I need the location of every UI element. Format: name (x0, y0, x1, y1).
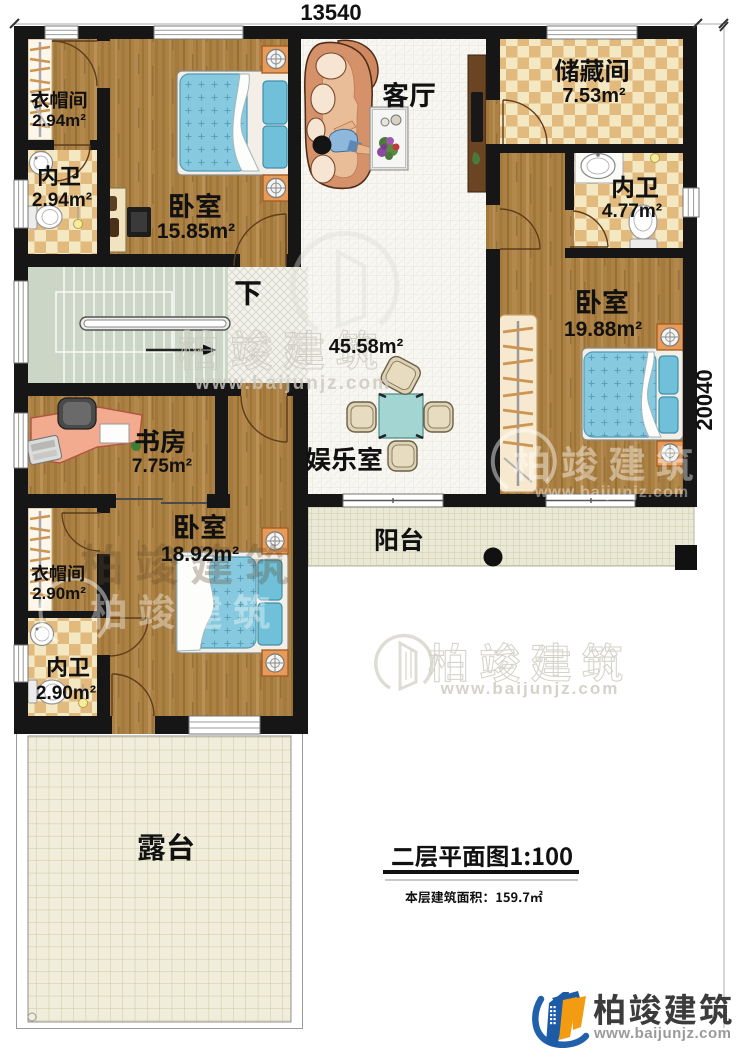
svg-text:2.94m²: 2.94m² (32, 111, 86, 130)
svg-text:19.88m²: 19.88m² (564, 318, 642, 341)
svg-text:20040: 20040 (692, 369, 717, 430)
svg-text:4.77m²: 4.77m² (602, 201, 662, 222)
svg-text:2.94m²: 2.94m² (32, 190, 92, 211)
svg-text:www.baijunjz.com: www.baijunjz.com (534, 484, 689, 501)
svg-text:www.baijunjz.com: www.baijunjz.com (194, 373, 391, 394)
svg-text:18.92m²: 18.92m² (161, 543, 239, 566)
svg-text:15.85m²: 15.85m² (157, 220, 235, 243)
svg-text:7.53m²: 7.53m² (562, 85, 626, 107)
svg-text:7.75m²: 7.75m² (132, 456, 192, 477)
svg-text:2.90m²: 2.90m² (32, 584, 86, 603)
svg-text:2.90m²: 2.90m² (36, 683, 96, 704)
svg-text:13540: 13540 (300, 0, 361, 25)
svg-text:www.baijunjz.com: www.baijunjz.com (440, 679, 620, 698)
svg-text:www.baijunjz.com: www.baijunjz.com (593, 1025, 731, 1042)
svg-text:45.58m²: 45.58m² (329, 336, 404, 358)
